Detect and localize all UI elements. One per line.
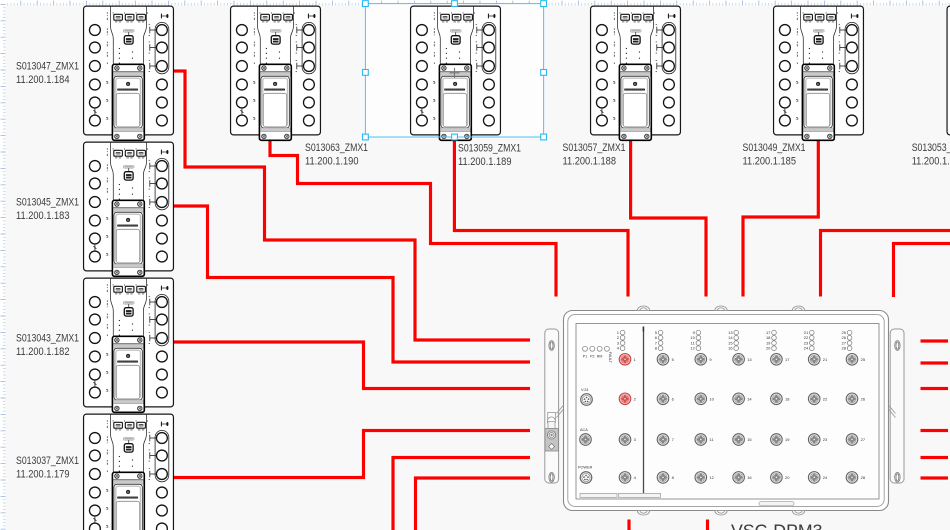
svg-text:12: 12 — [709, 475, 714, 480]
svg-text:11.200.1.185: 11.200.1.185 — [743, 156, 797, 168]
svg-text:24: 24 — [823, 475, 828, 480]
svg-text:S013057_ZMX1: S013057_ZMX1 — [563, 142, 626, 154]
svg-text:27: 27 — [861, 437, 866, 442]
svg-text:21: 21 — [823, 357, 828, 362]
svg-text:11.200.1.189: 11.200.1.189 — [458, 156, 512, 168]
svg-text:12: 12 — [690, 346, 695, 351]
svg-text:17: 17 — [785, 357, 790, 362]
svg-text:11.200.1.182: 11.200.1.182 — [16, 346, 70, 358]
svg-text:S013037_ZMX1: S013037_ZMX1 — [16, 455, 79, 467]
svg-text:18: 18 — [785, 396, 790, 401]
svg-text:S013063_ZMX1: S013063_ZMX1 — [305, 142, 368, 154]
svg-text:V.24: V.24 — [581, 388, 588, 392]
svg-text:ACA: ACA — [580, 428, 588, 432]
svg-text:S013059_ZMX1: S013059_ZMX1 — [458, 143, 521, 155]
svg-text:FAULT: FAULT — [608, 352, 612, 364]
svg-text:19: 19 — [785, 437, 790, 442]
svg-text:15: 15 — [747, 437, 752, 442]
svg-text:11.200.1.183: 11.200.1.183 — [16, 210, 70, 222]
svg-text:24: 24 — [804, 346, 809, 351]
svg-text:RM: RM — [597, 354, 603, 358]
svg-text:26: 26 — [861, 396, 866, 401]
svg-text:20: 20 — [785, 475, 790, 480]
svg-text:11.200.1.188: 11.200.1.188 — [563, 156, 617, 168]
svg-text:11.200.1.184: 11.200.1.184 — [16, 74, 70, 86]
svg-text:11.200.1.190: 11.200.1.190 — [305, 156, 359, 168]
svg-text:11.200.1.186: 11.200.1.186 — [912, 156, 950, 168]
svg-text:16: 16 — [728, 346, 733, 351]
svg-text:POWER: POWER — [578, 466, 593, 470]
svg-text:20: 20 — [766, 346, 771, 351]
svg-text:VSC-DPM3: VSC-DPM3 — [731, 521, 823, 530]
svg-text:22: 22 — [823, 396, 828, 401]
svg-text:16: 16 — [747, 475, 752, 480]
svg-text:S013047_ZMX1: S013047_ZMX1 — [16, 61, 79, 73]
svg-text:11.200.1.179: 11.200.1.179 — [16, 469, 70, 481]
svg-text:P2: P2 — [590, 354, 594, 358]
svg-text:P1: P1 — [583, 354, 587, 358]
svg-text:S013043_ZMX1: S013043_ZMX1 — [16, 333, 79, 345]
svg-text:25: 25 — [861, 357, 866, 362]
svg-text:13: 13 — [747, 357, 752, 362]
svg-text:S013053_ZMX1: S013053_ZMX1 — [912, 142, 950, 154]
svg-text:28: 28 — [861, 475, 866, 480]
svg-text:S013045_ZMX1: S013045_ZMX1 — [16, 197, 79, 209]
svg-text:23: 23 — [823, 437, 828, 442]
svg-text:28: 28 — [842, 346, 847, 351]
svg-text:S013049_ZMX1: S013049_ZMX1 — [743, 142, 806, 154]
svg-text:14: 14 — [747, 396, 752, 401]
svg-text:10: 10 — [709, 396, 714, 401]
